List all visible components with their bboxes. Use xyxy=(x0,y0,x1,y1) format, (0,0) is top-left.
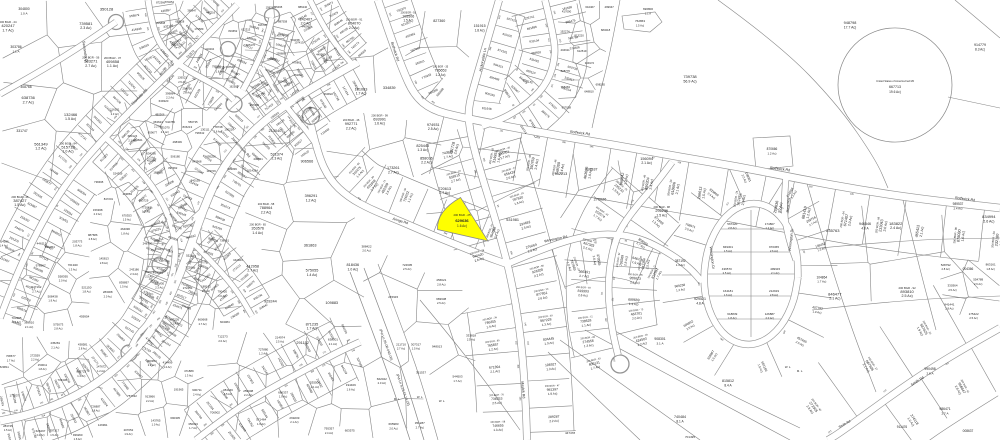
svg-text:145813: 145813 xyxy=(99,257,109,261)
svg-text:2.1 Ac): 2.1 Ac) xyxy=(829,297,840,301)
svg-text:531981: 531981 xyxy=(506,218,519,222)
svg-text:1.9 Ac): 1.9 Ac) xyxy=(279,395,287,399)
svg-text:847201: 847201 xyxy=(104,197,114,201)
svg-text:626297: 626297 xyxy=(36,429,46,433)
svg-text:360822: 360822 xyxy=(324,92,334,96)
svg-text:886240: 886240 xyxy=(298,5,307,9)
svg-text:629636: 629636 xyxy=(455,218,469,223)
svg-text:436631: 436631 xyxy=(253,157,263,161)
svg-text:480566: 480566 xyxy=(155,113,165,117)
svg-text:937058: 937058 xyxy=(562,105,572,109)
svg-text:1.0 Ac): 1.0 Ac) xyxy=(348,267,359,271)
svg-text:1.5 Ac): 1.5 Ac) xyxy=(636,24,644,28)
svg-text:1.0 Ac): 1.0 Ac) xyxy=(152,423,160,427)
svg-text:388422: 388422 xyxy=(361,244,371,248)
svg-text:840159: 840159 xyxy=(191,178,201,182)
svg-text:849301: 849301 xyxy=(723,245,733,249)
svg-text:205808: 205808 xyxy=(156,21,165,25)
svg-text:2.3 Ac): 2.3 Ac) xyxy=(130,272,138,276)
svg-text:1.1 Ac): 1.1 Ac) xyxy=(107,64,118,68)
svg-text:701495: 701495 xyxy=(685,435,695,439)
svg-text:911476: 911476 xyxy=(897,425,908,429)
svg-text:2.5 Ac): 2.5 Ac) xyxy=(948,288,956,292)
svg-text:447478: 447478 xyxy=(565,431,575,435)
svg-text:1.7 Ac): 1.7 Ac) xyxy=(307,327,318,331)
svg-text:M. L.: M. L. xyxy=(394,397,400,401)
svg-text:351287: 351287 xyxy=(415,421,425,425)
svg-text:259608: 259608 xyxy=(243,389,253,393)
svg-text:150011: 150011 xyxy=(38,363,48,367)
svg-text:1.8 Ac): 1.8 Ac) xyxy=(475,28,485,32)
svg-text:1.1 A: 1.1 A xyxy=(645,12,651,16)
svg-text:913866: 913866 xyxy=(145,395,155,399)
svg-text:2.0 Ac): 2.0 Ac) xyxy=(389,426,397,430)
svg-text:192274: 192274 xyxy=(560,29,570,33)
svg-text:2.8 Ac): 2.8 Ac) xyxy=(183,91,191,95)
svg-text:2.1 Ac): 2.1 Ac) xyxy=(148,363,156,367)
svg-text:1.3 Ac): 1.3 Ac) xyxy=(676,263,685,267)
svg-text:440992: 440992 xyxy=(302,24,311,28)
svg-text:642467: 642467 xyxy=(585,5,595,9)
svg-text:1.8 Ac): 1.8 Ac) xyxy=(92,409,100,413)
svg-text:2.7 Ac): 2.7 Ac) xyxy=(32,289,40,293)
svg-text:1.7 Ac): 1.7 Ac) xyxy=(189,426,197,430)
svg-text:2.2 Ac): 2.2 Ac) xyxy=(346,126,357,130)
svg-text:911054: 911054 xyxy=(45,245,55,249)
svg-text:908301: 908301 xyxy=(654,337,665,341)
svg-text:126991: 126991 xyxy=(98,423,108,427)
svg-text:740484: 740484 xyxy=(674,415,686,419)
svg-text:2.0 Ac): 2.0 Ac) xyxy=(218,339,226,343)
svg-text:590481: 590481 xyxy=(278,79,288,83)
svg-text:778748: 778748 xyxy=(213,125,223,129)
svg-text:2.4 Ac): 2.4 Ac) xyxy=(954,207,963,211)
svg-text:214974: 214974 xyxy=(275,336,285,340)
svg-text:1.7 Ac): 1.7 Ac) xyxy=(12,320,20,324)
svg-text:712273: 712273 xyxy=(218,335,228,339)
svg-text:1.0 A: 1.0 A xyxy=(20,12,28,16)
svg-text:603575: 603575 xyxy=(345,428,355,432)
svg-text:459954: 459954 xyxy=(79,315,89,319)
svg-text:612519: 612519 xyxy=(577,49,587,53)
svg-text:307317: 307317 xyxy=(411,343,421,347)
svg-text:495495: 495495 xyxy=(273,5,282,9)
svg-text:499915: 499915 xyxy=(770,267,780,271)
svg-text:958972: 958972 xyxy=(267,57,277,61)
svg-text:2.7 Ac): 2.7 Ac) xyxy=(85,64,96,68)
svg-text:1.5 Ac): 1.5 Ac) xyxy=(4,428,12,432)
svg-text:943968: 943968 xyxy=(192,159,202,163)
svg-text:2.4 Ac): 2.4 Ac) xyxy=(193,392,201,396)
svg-text:8.1 A: 8.1 A xyxy=(676,420,684,424)
svg-text:1.5 Ac): 1.5 Ac) xyxy=(65,117,76,121)
svg-text:2.3 Ac): 2.3 Ac) xyxy=(80,26,91,30)
svg-text:796542: 796542 xyxy=(195,131,205,135)
svg-text:3.1 A: 3.1 A xyxy=(656,342,664,346)
svg-text:436570: 436570 xyxy=(722,267,732,271)
svg-text:008637: 008637 xyxy=(963,429,974,433)
svg-text:115729: 115729 xyxy=(207,169,217,173)
svg-text:399864: 399864 xyxy=(165,91,175,95)
svg-text:235763: 235763 xyxy=(826,228,840,233)
svg-text:1.5 Ac): 1.5 Ac) xyxy=(724,249,732,253)
svg-text:696800: 696800 xyxy=(643,7,653,11)
svg-text:2.7 Ac): 2.7 Ac) xyxy=(388,170,399,174)
svg-text:701940: 701940 xyxy=(68,263,78,267)
svg-text:277430: 277430 xyxy=(154,281,164,285)
svg-text:686337: 686337 xyxy=(278,390,288,394)
svg-text:1.5 Ac): 1.5 Ac) xyxy=(120,285,128,289)
svg-text:145776: 145776 xyxy=(275,34,285,38)
svg-text:2.8 Ac): 2.8 Ac) xyxy=(728,226,736,230)
svg-text:703385: 703385 xyxy=(11,316,21,320)
svg-text:2.2 Ac): 2.2 Ac) xyxy=(166,96,174,100)
svg-text:2.1 Ac): 2.1 Ac) xyxy=(771,271,779,275)
svg-text:695983: 695983 xyxy=(388,422,398,426)
svg-text:2.2 Ac): 2.2 Ac) xyxy=(261,210,272,214)
svg-text:989537: 989537 xyxy=(953,202,964,206)
svg-text:815812: 815812 xyxy=(722,379,734,383)
svg-text:948798: 948798 xyxy=(844,21,857,25)
svg-text:449993: 449993 xyxy=(316,53,326,57)
svg-text:272559: 272559 xyxy=(30,354,40,358)
svg-text:823811: 823811 xyxy=(0,365,9,369)
svg-text:1.3 Ac): 1.3 Ac) xyxy=(629,302,639,306)
svg-text:2.5 Ac): 2.5 Ac) xyxy=(276,340,284,344)
svg-text:690305: 690305 xyxy=(170,416,180,420)
svg-text:827360: 827360 xyxy=(433,19,445,23)
svg-text:2.6 Ac): 2.6 Ac) xyxy=(974,282,982,286)
svg-text:2.7 Ac): 2.7 Ac) xyxy=(199,322,207,326)
svg-text:923281: 923281 xyxy=(153,270,164,275)
svg-text:215915: 215915 xyxy=(388,295,398,299)
svg-text:1.2 Ac): 1.2 Ac) xyxy=(163,365,171,369)
svg-text:946546: 946546 xyxy=(859,222,871,226)
svg-text:604084: 604084 xyxy=(220,320,230,324)
svg-text:648810: 648810 xyxy=(584,89,594,93)
svg-text:1.7 Ac): 1.7 Ac) xyxy=(817,280,826,284)
svg-text:1.7 Ac): 1.7 Ac) xyxy=(453,379,461,383)
svg-text:270026: 270026 xyxy=(594,198,607,202)
svg-text:929244: 929244 xyxy=(264,300,277,304)
svg-text:2.4 Ac): 2.4 Ac) xyxy=(325,431,333,435)
svg-text:1.6 Ac): 1.6 Ac) xyxy=(218,294,226,298)
svg-text:214254: 214254 xyxy=(248,169,258,173)
svg-text:618839: 618839 xyxy=(727,312,737,316)
svg-text:2.2 Ac): 2.2 Ac) xyxy=(549,419,559,423)
svg-text:2.5 Ac): 2.5 Ac) xyxy=(437,301,445,305)
svg-text:269883: 269883 xyxy=(123,192,133,196)
svg-text:156938: 156938 xyxy=(93,208,103,212)
svg-text:1.9 Ac): 1.9 Ac) xyxy=(257,422,265,426)
svg-text:1.5 Ac): 1.5 Ac) xyxy=(656,213,667,217)
svg-text:447216: 447216 xyxy=(206,11,215,15)
svg-text:W. L.: W. L. xyxy=(439,399,446,403)
svg-text:2.1 Ac): 2.1 Ac) xyxy=(490,369,500,374)
svg-text:2.2 Ac): 2.2 Ac) xyxy=(36,433,44,437)
svg-text:724605: 724605 xyxy=(402,263,412,267)
svg-text:2.5 Ac): 2.5 Ac) xyxy=(723,271,731,275)
svg-text:1.8 Ac): 1.8 Ac) xyxy=(38,367,46,371)
svg-text:893729: 893729 xyxy=(139,198,149,202)
svg-text:414499: 414499 xyxy=(163,361,173,365)
svg-text:2.1 Ac): 2.1 Ac) xyxy=(329,342,337,346)
svg-text:941441: 941441 xyxy=(944,303,954,307)
svg-text:2.8 Ac): 2.8 Ac) xyxy=(942,267,950,271)
svg-text:885723: 885723 xyxy=(76,370,86,374)
svg-text:1.8 Ac): 1.8 Ac) xyxy=(728,316,736,320)
svg-text:248780: 248780 xyxy=(143,242,153,246)
svg-text:2.1 Ac): 2.1 Ac) xyxy=(290,420,298,424)
svg-text:194409: 194409 xyxy=(346,383,356,387)
svg-text:451802: 451802 xyxy=(294,73,304,77)
svg-text:212919: 212919 xyxy=(769,289,779,293)
svg-text:825176: 825176 xyxy=(246,43,255,47)
svg-text:334839: 334839 xyxy=(383,86,396,90)
svg-text:2.5 Ac): 2.5 Ac) xyxy=(224,392,232,396)
svg-text:2.7 Ac): 2.7 Ac) xyxy=(397,347,405,351)
svg-text:2.8 Ac): 2.8 Ac) xyxy=(79,347,87,351)
svg-text:557431: 557431 xyxy=(154,258,165,263)
svg-text:1.6 Ac): 1.6 Ac) xyxy=(347,387,355,391)
svg-text:2.0 Ac): 2.0 Ac) xyxy=(349,26,360,30)
svg-text:1.2 Ac): 1.2 Ac) xyxy=(766,226,774,230)
svg-text:272453: 272453 xyxy=(183,286,193,290)
svg-text:1.5 Ac): 1.5 Ac) xyxy=(403,19,413,23)
svg-text:8.3 Ac): 8.3 Ac) xyxy=(975,48,985,52)
svg-text:2.5 Ac): 2.5 Ac) xyxy=(492,401,502,405)
svg-text:203773: 203773 xyxy=(72,239,82,243)
svg-text:2.7 Ac): 2.7 Ac) xyxy=(579,274,589,278)
svg-text:1.2 Ac): 1.2 Ac) xyxy=(768,152,777,156)
svg-text:634236: 634236 xyxy=(146,151,156,155)
svg-text:304800: 304800 xyxy=(18,7,29,11)
svg-text:United States of America Fed M: United States of America Fed Mil xyxy=(876,79,914,83)
svg-text:828776: 828776 xyxy=(561,69,571,73)
svg-text:929521: 929521 xyxy=(694,297,706,301)
svg-text:2.1 Ac): 2.1 Ac) xyxy=(161,130,169,134)
svg-text:471889: 471889 xyxy=(184,369,194,373)
svg-text:171037: 171037 xyxy=(9,393,19,397)
svg-text:2.2 Ac): 2.2 Ac) xyxy=(421,161,432,165)
svg-text:1.7 Ac): 1.7 Ac) xyxy=(7,358,15,362)
svg-text:1.8 Ac): 1.8 Ac) xyxy=(82,290,90,294)
svg-text:2.0 Ac): 2.0 Ac) xyxy=(59,279,67,283)
svg-text:667713: 667713 xyxy=(889,85,901,89)
svg-text:508438: 508438 xyxy=(48,294,58,298)
svg-text:349172: 349172 xyxy=(585,61,595,65)
svg-text:456621: 456621 xyxy=(436,278,446,282)
svg-text:19.6 Ac): 19.6 Ac) xyxy=(889,90,901,94)
svg-text:772042: 772042 xyxy=(141,205,151,209)
svg-text:1.6 Ac): 1.6 Ac) xyxy=(724,293,732,297)
svg-text:143765: 143765 xyxy=(151,419,161,423)
svg-text:404821: 404821 xyxy=(133,138,143,142)
svg-text:191965: 191965 xyxy=(174,388,184,392)
svg-text:2.8 Ac): 2.8 Ac) xyxy=(770,293,778,297)
svg-text:2.3 Ac): 2.3 Ac) xyxy=(111,112,119,116)
svg-text:1.2 Ac): 1.2 Ac) xyxy=(97,369,105,373)
svg-text:464096: 464096 xyxy=(120,227,130,231)
svg-text:547162: 547162 xyxy=(31,285,41,289)
svg-text:351537: 351537 xyxy=(416,371,426,375)
svg-text:659677: 659677 xyxy=(148,131,158,135)
svg-text:4.8 A: 4.8 A xyxy=(696,302,704,306)
svg-text:660668: 660668 xyxy=(198,318,208,322)
svg-text:294756: 294756 xyxy=(182,87,192,91)
svg-text:1.3 Ac): 1.3 Ac) xyxy=(417,148,428,152)
svg-text:1.5 Ac): 1.5 Ac) xyxy=(50,433,58,437)
svg-text:759975: 759975 xyxy=(144,270,154,274)
svg-text:1.3 Ac): 1.3 Ac) xyxy=(546,367,556,372)
svg-text:1.1 A: 1.1 A xyxy=(12,50,20,54)
svg-text:211710: 211710 xyxy=(396,342,406,346)
svg-text:269209: 269209 xyxy=(289,416,299,420)
svg-text:4.0 A: 4.0 A xyxy=(861,227,869,231)
svg-text:310537: 310537 xyxy=(585,167,598,171)
svg-text:2.6 Ac): 2.6 Ac) xyxy=(770,249,778,253)
svg-text:M. L.: M. L. xyxy=(797,369,803,373)
svg-text:990498: 990498 xyxy=(924,367,935,371)
svg-text:647546: 647546 xyxy=(226,65,235,69)
svg-text:1.5 Ac): 1.5 Ac) xyxy=(412,347,420,351)
svg-text:727880: 727880 xyxy=(258,348,268,352)
svg-text:948013: 948013 xyxy=(432,345,442,349)
svg-text:2.3 Ac): 2.3 Ac) xyxy=(94,212,102,216)
svg-text:190216: 190216 xyxy=(224,128,234,132)
svg-text:350128: 350128 xyxy=(100,6,114,11)
svg-text:695256: 695256 xyxy=(206,154,216,158)
svg-text:2.8 Ac): 2.8 Ac) xyxy=(54,327,62,331)
svg-text:2.6 Ac): 2.6 Ac) xyxy=(214,129,222,133)
svg-text:116191: 116191 xyxy=(110,108,120,112)
svg-text:468309: 468309 xyxy=(173,140,183,144)
svg-text:1.6 Ac): 1.6 Ac) xyxy=(457,224,467,228)
svg-text:708677: 708677 xyxy=(6,354,16,358)
svg-text:2.5 Ac): 2.5 Ac) xyxy=(178,80,186,84)
svg-text:793280: 793280 xyxy=(212,64,221,68)
svg-text:1.2 Ac): 1.2 Ac) xyxy=(436,73,446,77)
svg-text:303786: 303786 xyxy=(10,45,21,49)
svg-text:2.2 Ac): 2.2 Ac) xyxy=(31,358,39,362)
svg-text:790420: 790420 xyxy=(217,290,227,294)
svg-text:683638: 683638 xyxy=(436,297,446,301)
svg-text:2.8 Ac): 2.8 Ac) xyxy=(437,282,445,286)
svg-text:2.0 Ac): 2.0 Ac) xyxy=(202,289,210,293)
svg-text:168626: 168626 xyxy=(153,170,163,174)
svg-text:361863: 361863 xyxy=(304,244,317,248)
svg-text:384346: 384346 xyxy=(223,388,233,392)
svg-text:2.2 Ac): 2.2 Ac) xyxy=(244,393,252,397)
svg-text:813220: 813220 xyxy=(574,34,584,38)
svg-text:2.7 Ac): 2.7 Ac) xyxy=(23,100,34,104)
svg-text:913839: 913839 xyxy=(228,167,238,171)
svg-text:2.1 Ac): 2.1 Ac) xyxy=(641,161,652,165)
svg-text:330364: 330364 xyxy=(947,284,957,288)
svg-text:2.8 A: 2.8 A xyxy=(926,372,934,376)
svg-text:452196: 452196 xyxy=(147,159,157,163)
svg-text:2.0 Ac): 2.0 Ac) xyxy=(378,381,386,385)
svg-text:1.5 Ac): 1.5 Ac) xyxy=(123,218,131,222)
svg-text:350924: 350924 xyxy=(188,422,198,426)
svg-text:283745: 283745 xyxy=(3,424,13,428)
svg-text:1.7 Ac): 1.7 Ac) xyxy=(356,92,367,96)
svg-text:297317: 297317 xyxy=(49,429,59,433)
svg-text:162585: 162585 xyxy=(229,84,238,88)
svg-text:308768: 308768 xyxy=(20,85,31,89)
svg-text:524319: 524319 xyxy=(113,172,123,176)
svg-text:521150: 521150 xyxy=(82,285,92,289)
svg-text:738661: 738661 xyxy=(219,239,229,243)
svg-text:556735: 556735 xyxy=(188,120,198,124)
svg-text:162923: 162923 xyxy=(233,258,243,262)
svg-text:795357: 795357 xyxy=(324,427,334,431)
svg-text:414596: 414596 xyxy=(0,239,9,243)
svg-text:1.9 Ac): 1.9 Ac) xyxy=(48,299,56,303)
svg-text:130111: 130111 xyxy=(201,128,210,132)
svg-text:243186: 243186 xyxy=(129,268,139,272)
svg-text:126887: 126887 xyxy=(765,312,775,316)
svg-text:8.4 A: 8.4 A xyxy=(724,384,732,388)
svg-text:2.6 Ac): 2.6 Ac) xyxy=(983,219,994,223)
svg-text:2.1 Ac): 2.1 Ac) xyxy=(25,325,33,329)
svg-text:986471: 986471 xyxy=(939,407,950,411)
svg-text:164181: 164181 xyxy=(723,289,733,293)
svg-text:1.8 Ac): 1.8 Ac) xyxy=(986,267,994,271)
svg-text:369010: 369010 xyxy=(24,321,34,325)
svg-text:2.1 Ac): 2.1 Ac) xyxy=(51,345,59,349)
svg-text:2.8 Ac): 2.8 Ac) xyxy=(100,261,108,265)
svg-text:17.7 Ac): 17.7 Ac) xyxy=(844,26,856,30)
svg-text:213040: 213040 xyxy=(269,129,282,133)
svg-text:914779: 914779 xyxy=(974,43,986,47)
svg-text:241592: 241592 xyxy=(171,43,180,47)
svg-text:765463: 765463 xyxy=(561,85,571,89)
svg-text:528792: 528792 xyxy=(941,263,951,267)
svg-text:870666: 870666 xyxy=(767,147,778,151)
svg-text:1.1 Ac): 1.1 Ac) xyxy=(77,374,85,378)
svg-text:1.8 Ac): 1.8 Ac) xyxy=(121,231,129,235)
svg-text:638301: 638301 xyxy=(328,338,338,342)
svg-text:2.3 Ac): 2.3 Ac) xyxy=(272,157,283,161)
svg-text:1.6 Ac): 1.6 Ac) xyxy=(374,122,385,126)
svg-text:932213: 932213 xyxy=(555,172,568,176)
svg-text:2.5 Ac): 2.5 Ac) xyxy=(902,294,913,298)
svg-text:126521: 126521 xyxy=(177,76,187,80)
svg-text:235281: 235281 xyxy=(50,341,60,345)
svg-text:2.2 Ac): 2.2 Ac) xyxy=(146,399,154,403)
svg-text:410204: 410204 xyxy=(205,47,214,51)
svg-text:397362: 397362 xyxy=(168,166,178,170)
svg-text:2.8 Ac): 2.8 Ac) xyxy=(89,237,97,241)
svg-text:2.8 Ac): 2.8 Ac) xyxy=(945,307,953,311)
svg-text:365647: 365647 xyxy=(187,9,196,13)
svg-text:2.5 Ac): 2.5 Ac) xyxy=(403,267,411,271)
svg-text:56.9 Ac): 56.9 Ac) xyxy=(683,80,696,84)
svg-text:2.5 Ac): 2.5 Ac) xyxy=(630,280,640,284)
svg-text:622313: 622313 xyxy=(241,28,250,32)
svg-text:1.3 Ac): 1.3 Ac) xyxy=(185,373,193,377)
svg-text:2.0 Ac): 2.0 Ac) xyxy=(362,249,370,253)
svg-text:259688: 259688 xyxy=(276,52,285,56)
svg-text:943226: 943226 xyxy=(169,317,179,321)
svg-text:757032: 757032 xyxy=(127,394,137,398)
svg-text:2.4 Ac): 2.4 Ac) xyxy=(890,226,901,230)
svg-text:417090: 417090 xyxy=(562,10,572,14)
svg-text:1.2 Ac): 1.2 Ac) xyxy=(259,352,267,356)
svg-text:1.4 Ac): 1.4 Ac) xyxy=(0,244,8,248)
svg-text:2.3 Ac): 2.3 Ac) xyxy=(155,286,163,290)
